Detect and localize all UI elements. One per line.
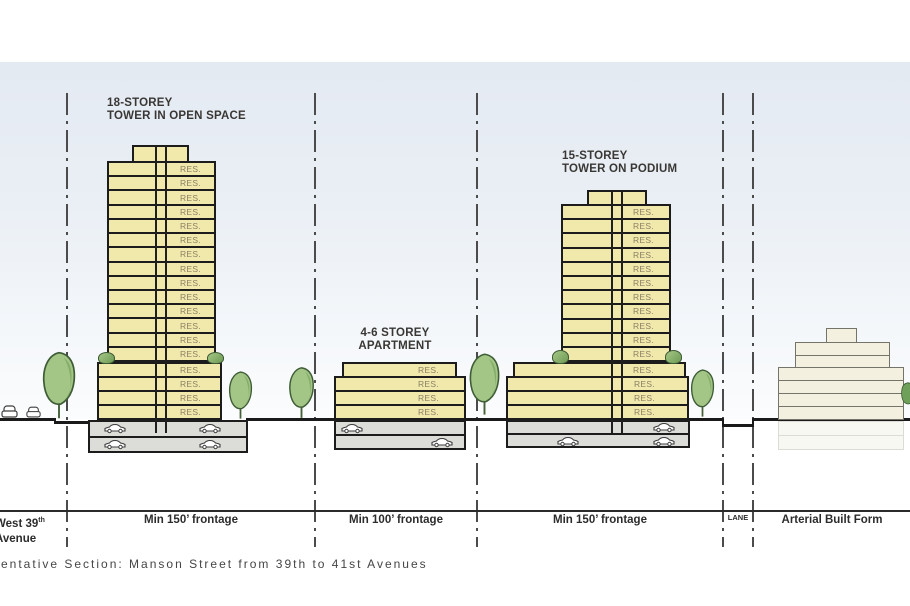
lane-ground-line (722, 424, 754, 427)
left-tower-label: 18-STOREY TOWER IN OPEN SPACE (107, 97, 246, 123)
arterial-label: Arterial Built Form (753, 514, 910, 526)
arterial-building-base (778, 367, 904, 420)
podium-floor: RES. (508, 404, 687, 418)
floor-use-label: RES. (633, 207, 654, 217)
floor-use-label: RES. (634, 407, 655, 417)
podium-floor: RES. (99, 390, 220, 404)
podium-floor: RES. (508, 378, 687, 390)
car-icon (103, 423, 127, 434)
shrub-icon (552, 350, 569, 364)
floor-use-label: RES. (180, 178, 201, 188)
right-tower-label: 15-STOREY TOWER ON PODIUM (562, 150, 677, 176)
car-icon (198, 423, 222, 434)
tree-icon (40, 350, 78, 420)
floor-use-label: RES. (633, 335, 654, 345)
tower-floor: RES. (109, 332, 214, 346)
tower-floor: RES. (109, 204, 214, 218)
floor-use-label: RES. (180, 164, 201, 174)
apartment-floor: RES. (336, 390, 464, 404)
floor-use-label: RES. (633, 250, 654, 260)
arterial-floor (779, 393, 903, 406)
floor-use-label: RES. (633, 349, 654, 359)
podium-floor: RES. (508, 390, 687, 404)
apartment-floor: RES. (336, 378, 464, 390)
floor-use-label: RES. (180, 292, 201, 302)
dimension-line (0, 510, 910, 512)
tower-floor: RES. (109, 275, 214, 289)
tower-floor: RES. (563, 275, 669, 289)
floor-use-label: RES. (180, 379, 201, 389)
right-tower-body: RES.RES.RES.RES.RES.RES.RES.RES.RES.RES.… (561, 204, 671, 362)
apartment-floor: RES. (344, 364, 455, 376)
elevator-core-line (155, 145, 157, 433)
property-line (722, 93, 724, 547)
shrub-icon (207, 352, 224, 364)
mid-building-label: 4-6 STOREY APARTMENT (330, 327, 460, 353)
floor-use-label: RES. (633, 292, 654, 302)
tower-floor: RES. (563, 289, 669, 303)
arterial-building-mid (795, 342, 890, 368)
tower-floor: RES. (563, 247, 669, 261)
ground-line-segment (54, 421, 89, 424)
floor-use-label: RES. (180, 335, 201, 345)
tower-floor: RES. (109, 346, 214, 360)
shrub-icon (98, 352, 115, 364)
tower-floor: RES. (109, 163, 214, 175)
floor-use-label: RES. (633, 278, 654, 288)
right-tower-podium-lower: RES.RES.RES. (506, 376, 689, 420)
section-diagram: 18-STOREY TOWER IN OPEN SPACE RES.RES.RE… (0, 0, 910, 606)
floor-use-label: RES. (633, 221, 654, 231)
property-line (314, 93, 316, 547)
tree-icon (467, 349, 502, 419)
left-tower-podium: RES.RES.RES.RES. (97, 362, 222, 420)
floor-use-label: RES. (180, 278, 201, 288)
floor-use-label: RES. (180, 365, 201, 375)
tower-floor: RES. (109, 232, 214, 246)
tower-floor: RES. (563, 346, 669, 360)
property-line (66, 93, 68, 547)
property-line (752, 93, 754, 547)
tower-floor: RES. (109, 317, 214, 331)
floor-use-label: RES. (180, 207, 201, 217)
floor-use-label: RES. (180, 264, 201, 274)
arterial-floor (779, 368, 903, 380)
apartment-floor: RES. (336, 404, 464, 418)
floor-use-label: RES. (180, 249, 201, 259)
arterial-floor (779, 380, 903, 393)
tower-floor: RES. (563, 318, 669, 332)
tower-floor: RES. (563, 332, 669, 346)
frontage-label-right: Min 150’ frontage (477, 514, 723, 526)
car-icon (430, 437, 454, 448)
tower-floor: RES. (563, 303, 669, 317)
floor-use-label: RES. (418, 393, 439, 403)
tree-icon (689, 367, 716, 419)
tower-floor: RES. (563, 232, 669, 246)
arterial-underground-level (779, 422, 903, 435)
floor-use-label: RES. (418, 365, 439, 375)
arterial-floor (779, 406, 903, 419)
frontage-label-mid: Min 100’ frontage (315, 514, 477, 526)
floor-use-label: RES. (180, 407, 201, 417)
elevator-core-line (621, 192, 623, 433)
elevator-core-line (611, 192, 613, 433)
floor-use-label: RES. (180, 349, 201, 359)
arterial-underground (778, 421, 904, 450)
car-icon (340, 423, 364, 434)
podium-floor: RES. (99, 376, 220, 390)
tree-icon (227, 370, 254, 420)
floor-use-label: RES. (180, 235, 201, 245)
frontage-label-left: Min 150’ frontage (67, 514, 315, 526)
arterial-underground-level (779, 435, 903, 449)
mid-building-lower-floors: RES.RES.RES. (334, 376, 466, 420)
car-icon (652, 436, 676, 447)
podium-floor: RES. (515, 364, 684, 376)
elevator-core-line (165, 145, 167, 433)
lane-label: LANE (723, 513, 753, 522)
floor-use-label: RES. (633, 306, 654, 316)
floor-use-label: RES. (180, 306, 201, 316)
tower-floor: RES. (563, 206, 669, 218)
floor-use-label: RES. (180, 221, 201, 231)
floor-use-label: RES. (180, 393, 201, 403)
arterial-floor (796, 355, 889, 368)
floor-use-label: RES. (418, 407, 439, 417)
tower-floor: RES. (109, 303, 214, 317)
tower-floor: RES. (109, 289, 214, 303)
section-caption: entative Section: Manson Street from 39t… (1, 557, 428, 571)
tower-floor: RES. (563, 218, 669, 232)
shrub-icon (665, 350, 682, 364)
arterial-floor (796, 343, 889, 355)
car-icon (26, 406, 41, 419)
floor-use-label: RES. (418, 379, 439, 389)
property-line (476, 93, 478, 547)
tower-floor: RES. (563, 261, 669, 275)
car-icon (198, 439, 222, 450)
car-icon (103, 439, 127, 450)
floor-use-label: RES. (633, 321, 654, 331)
floor-use-label: RES. (180, 321, 201, 331)
floor-use-label: RES. (633, 365, 654, 375)
podium-floor: RES. (99, 364, 220, 376)
podium-floor: RES. (99, 404, 220, 418)
tower-floor: RES. (109, 218, 214, 232)
floor-use-label: RES. (634, 379, 655, 389)
tree-icon (287, 366, 316, 419)
tower-floor: RES. (109, 261, 214, 275)
car-icon (1, 405, 18, 419)
floor-use-label: RES. (180, 193, 201, 203)
left-tower-body: RES.RES.RES.RES.RES.RES.RES.RES.RES.RES.… (107, 161, 216, 362)
car-icon (652, 422, 676, 433)
tower-floor: RES. (109, 175, 214, 189)
floor-use-label: RES. (633, 264, 654, 274)
street-name-label: West 39th Avenue (0, 513, 75, 547)
floor-use-label: RES. (633, 235, 654, 245)
car-icon (556, 436, 580, 447)
tree-icon (900, 382, 910, 406)
tower-floor: RES. (109, 246, 214, 260)
tower-floor: RES. (109, 189, 214, 203)
floor-use-label: RES. (634, 393, 655, 403)
